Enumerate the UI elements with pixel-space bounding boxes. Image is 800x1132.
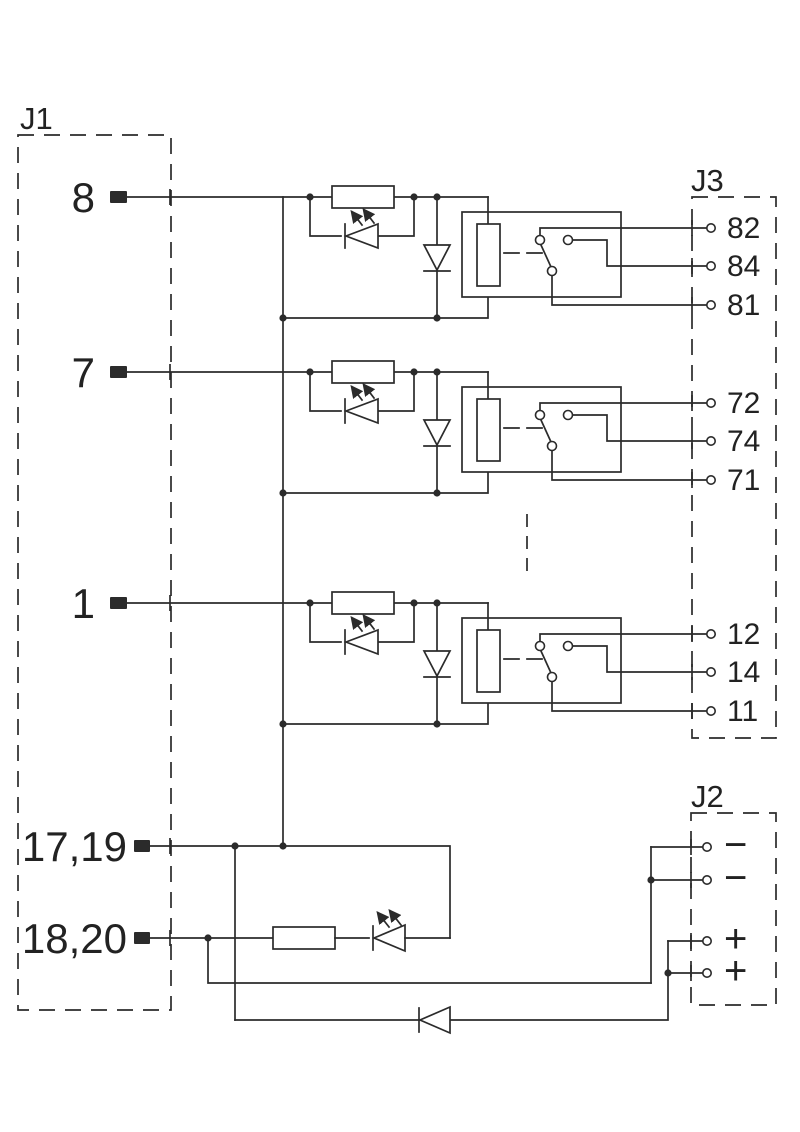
junction-dot (664, 969, 671, 976)
j3-pin-label-84: 84 (727, 250, 760, 283)
terminal-8 (110, 191, 127, 203)
j2-contact-circle (703, 969, 711, 977)
reverse-diode-triangle (420, 1007, 450, 1033)
j3-pin-label-11: 11 (727, 695, 758, 728)
j2-polarity-minus-2: − (724, 856, 747, 900)
j3-pin-label-71: 71 (727, 464, 760, 497)
indicator-resistor (273, 927, 335, 949)
j2-plus-riser (450, 941, 668, 1020)
j1-pin-label-18-20: 18,20 (22, 915, 127, 962)
relay-module-schematic: J1 J3 J2 8 7 1 17,19 18,20 82 84 81 72 7… (0, 0, 800, 1132)
j1-pin-label-17-19: 17,19 (22, 823, 127, 870)
terminal-18-20 (134, 932, 150, 944)
j1-connector-outline (18, 135, 171, 1010)
j1-pin-label-1: 1 (72, 580, 95, 627)
border-crossing-ticks (170, 189, 692, 981)
junction-dot (231, 842, 238, 849)
relay-channel-7 (127, 361, 715, 497)
led-emission-arrow (390, 911, 401, 925)
led-emission-arrow (378, 913, 389, 927)
j3-pin-label-74: 74 (727, 425, 760, 458)
j1-pin-label-8: 8 (72, 174, 95, 221)
junction-dot (204, 934, 211, 941)
schematic-page: J1 J3 J2 8 7 1 17,19 18,20 82 84 81 72 7… (0, 0, 800, 1132)
j2-contact-circle (703, 843, 711, 851)
j3-pin-label-72: 72 (727, 387, 760, 420)
j3-pin-label-82: 82 (727, 212, 760, 245)
j1-pin-label-7: 7 (72, 349, 95, 396)
terminal-1 (110, 597, 127, 609)
j1-label: J1 (20, 101, 53, 136)
terminal-7 (110, 366, 127, 378)
j2-polarity-plus-2: + (724, 949, 747, 993)
j2-contact-circle (703, 937, 711, 945)
j3-label: J3 (691, 163, 724, 198)
junction-dot (279, 842, 286, 849)
j3-pin-label-81: 81 (727, 289, 760, 322)
j3-pin-label-14: 14 (727, 656, 760, 689)
junction-dot (647, 876, 654, 883)
j2-contact-circle (703, 876, 711, 884)
indicator-led-triangle (374, 925, 405, 951)
terminal-17-19 (134, 840, 150, 852)
relay-channel-1 (127, 592, 715, 728)
j3-pin-label-12: 12 (727, 618, 760, 651)
j2-label: J2 (691, 779, 724, 814)
relay-channel-8 (127, 186, 715, 322)
